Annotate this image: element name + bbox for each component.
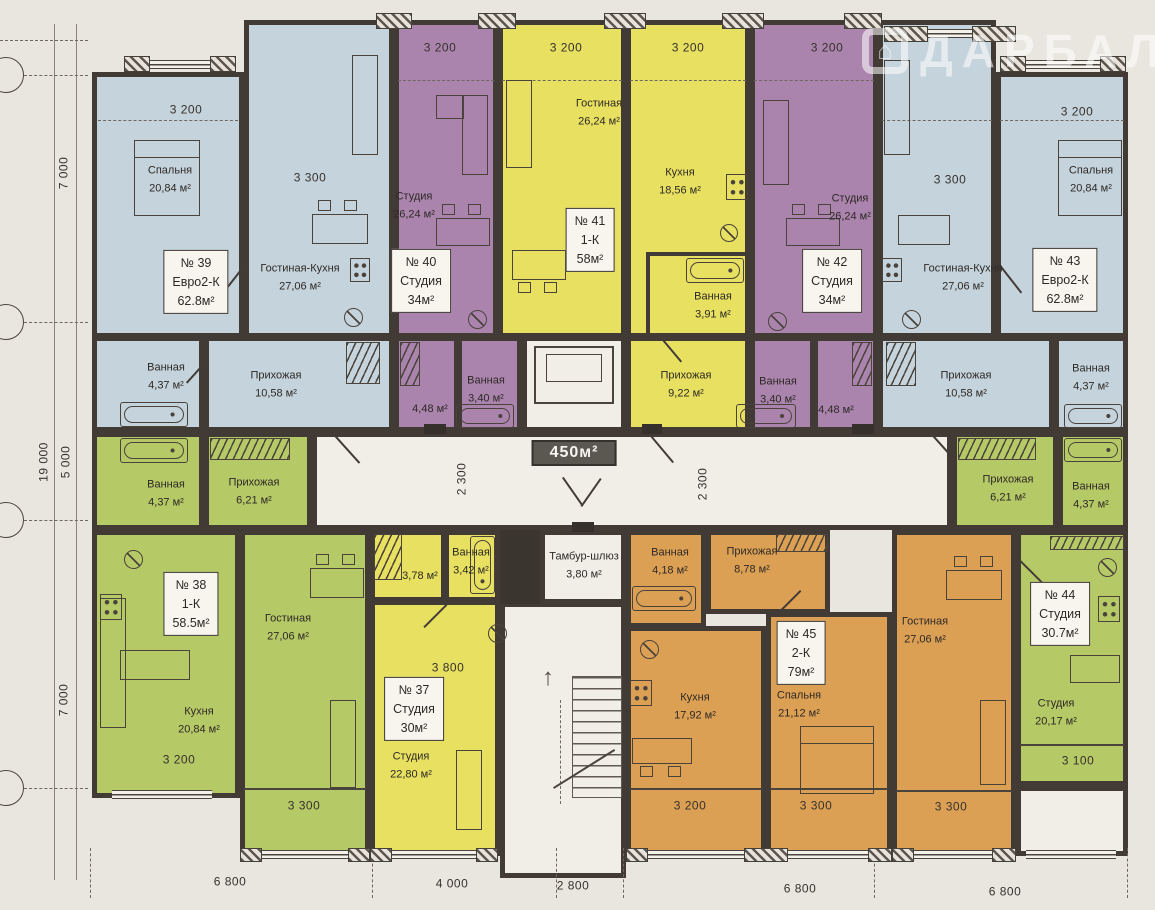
dim-apt45-living: 3 300 [935, 797, 968, 816]
label-apt41-kitchen: Кухня 18,56 м² [659, 164, 701, 199]
dim-bottom-2: 4 000 [436, 874, 469, 893]
chair-icon [668, 766, 681, 777]
chair-icon [468, 204, 481, 215]
washer-icon [124, 550, 143, 569]
room-area: 22,80 м² [390, 766, 432, 784]
dim-apt39-living: 3 300 [294, 168, 327, 187]
table-icon [1070, 655, 1120, 683]
bathtub-inner [124, 406, 184, 423]
wall-hatch [844, 13, 882, 29]
bathtub-icon [1064, 404, 1122, 428]
stairs-icon [572, 676, 622, 798]
room-name: Гостиная-Кухня [923, 260, 1002, 278]
washer-icon [488, 624, 507, 643]
balcony-rail [392, 850, 478, 859]
room-name: Кухня [178, 703, 220, 721]
room-name: Ванная [1072, 360, 1110, 378]
badge-apt42: № 42 Студия 34м² [802, 249, 862, 313]
stairs-up-arrow-icon: ↑ [542, 664, 554, 692]
apt-area: 58м² [575, 249, 606, 268]
apt-type: 2-К [786, 644, 817, 663]
closet-icon [1050, 536, 1124, 550]
sofa-icon [462, 95, 488, 175]
bathtub-inner [690, 262, 740, 279]
door-threshold [852, 424, 874, 434]
sofa-icon [506, 80, 532, 168]
chair-icon [544, 282, 557, 293]
axis-dash [0, 40, 88, 41]
balcony-line [630, 788, 762, 790]
closet-icon [852, 342, 872, 386]
axis-marker [0, 304, 24, 340]
dim-apt38-living: 3 300 [288, 796, 321, 815]
sofa-icon [884, 60, 910, 155]
room-name: Гостиная [902, 613, 948, 631]
room-area: 4,18 м² [651, 562, 689, 580]
apt-type: Студия [811, 272, 853, 291]
balcony-rail [1026, 850, 1116, 859]
axis-dash [90, 848, 91, 898]
table-icon [512, 250, 566, 280]
bed-pillow [1059, 141, 1121, 158]
badge-apt39: № 39 Евро2-К 62.8м² [163, 250, 228, 314]
wall-hatch [476, 848, 498, 862]
room-name: Спальня [1069, 162, 1113, 180]
room-name: Студия [390, 748, 432, 766]
axis-marker [0, 57, 24, 93]
bathtub-icon [120, 438, 188, 463]
sofa-icon [330, 700, 356, 788]
elevator-cab [546, 354, 602, 382]
stove-icon [1098, 596, 1120, 622]
table-icon [898, 215, 950, 245]
washer-icon [344, 308, 363, 327]
room-area: 8,78 м² [727, 561, 778, 579]
bathtub-inner [740, 408, 792, 424]
watermark-text: ДАРБАЛТ [920, 24, 1155, 78]
label-apt37-bath: Ванная 3,42 м² [452, 544, 490, 579]
dim-apt39-bedroom: 3 200 [170, 100, 203, 119]
wall-hatch [626, 848, 648, 862]
dim-bottom-5: 6 800 [989, 882, 1022, 901]
room-name: Кухня [674, 689, 716, 707]
balcony-rail [648, 850, 744, 859]
axis-dash [623, 848, 624, 898]
label-apt41-hall: Прихожая 9,22 м² [661, 367, 712, 402]
axis-dash [24, 520, 88, 521]
sofa-icon [980, 700, 1006, 785]
dim-left-total: 19 000 [34, 442, 53, 482]
room-name: Ванная [759, 373, 797, 391]
label-apt42-studio: Студия 26,24 м² [829, 190, 871, 225]
apt-area: 58.5м² [172, 613, 209, 632]
room-area: 10,58 м² [251, 385, 302, 403]
closet-icon [776, 534, 828, 552]
apt-number: № 45 [786, 625, 817, 644]
balcony-line [398, 80, 494, 81]
chair-icon [318, 200, 331, 211]
badge-apt38: № 38 1-К 58.5м² [163, 572, 218, 636]
room-name: Тамбур-шлюз [549, 548, 619, 566]
wall-hatch [868, 848, 892, 862]
badge-floor-area: 450м² [532, 440, 617, 466]
sofa-icon [436, 95, 464, 119]
closet-icon [346, 342, 380, 384]
room-name: Гостиная [576, 95, 622, 113]
apt-area: 62.8м² [1041, 289, 1088, 308]
closet-icon [210, 438, 290, 460]
room-area: 3,40 м² [759, 391, 797, 409]
room-area: 18,56 м² [659, 182, 701, 200]
room-area: 26,24 м² [393, 206, 435, 224]
dim-apt43-bedroom: 3 200 [1061, 102, 1094, 121]
room-area: 6,21 м² [983, 489, 1034, 507]
room-name: Прихожая [661, 367, 712, 385]
label-apt42-bath: Ванная 3,40 м² [759, 373, 797, 408]
stove-icon [350, 258, 370, 282]
wall-hatch [370, 848, 392, 862]
room-area: 4,37 м² [1072, 496, 1110, 514]
room-name: Спальня [148, 162, 192, 180]
table-icon [310, 568, 364, 598]
label-apt38-bath: Ванная 4,37 м² [147, 476, 185, 511]
room-name: Прихожая [727, 543, 778, 561]
label-apt37-studio: Студия 22,80 м² [390, 748, 432, 783]
wall-hatch [604, 13, 646, 29]
window-rail [112, 790, 212, 799]
label-apt39-bedroom: Спальня 20,84 м² [148, 162, 192, 197]
room-area: 21,12 м² [777, 705, 821, 723]
room-area: 3,42 м² [452, 562, 490, 580]
room-area: 6,21 м² [229, 492, 280, 510]
dim-apt45-kitchen: 3 200 [674, 796, 707, 815]
room-area: 3,80 м² [549, 566, 619, 584]
wall-hatch [892, 848, 914, 862]
room-name: Ванная [147, 476, 185, 494]
washer-icon [720, 224, 738, 242]
bed-pillow [801, 727, 873, 744]
chair-icon [792, 204, 805, 215]
badge-apt37: № 37 Студия 30м² [384, 677, 444, 741]
dim-apt41-right: 3 200 [672, 38, 705, 57]
badge-apt40: № 40 Студия 34м² [391, 249, 451, 313]
room-name: Ванная [1072, 478, 1110, 496]
bed-pillow [135, 141, 199, 158]
wall-hatch [992, 848, 1016, 862]
apt-type: Евро2-К [1041, 271, 1088, 290]
balcony-line [630, 80, 746, 81]
room-name: Гостиная-Кухня [260, 260, 339, 278]
apt-number: № 39 [172, 254, 219, 273]
axis-dash [24, 322, 88, 323]
wall-hatch [210, 56, 236, 72]
stove-icon [726, 174, 748, 200]
wall-hatch [348, 848, 370, 862]
balcony-rail [262, 850, 350, 859]
room-name: Студия [1035, 695, 1077, 713]
apt-area: 34м² [400, 290, 442, 309]
dim-apt41-left: 3 200 [550, 38, 583, 57]
room-name: Ванная [467, 372, 505, 390]
label-apt39-hall: Прихожая 10,58 м² [251, 367, 302, 402]
apt-number: № 41 [575, 212, 606, 231]
label-apt43-living: Гостиная-Кухня 27,06 м² [923, 260, 1002, 295]
door-threshold [642, 424, 662, 434]
balcony-rail [788, 850, 870, 859]
dim-bottom-4: 6 800 [784, 879, 817, 898]
bathtub-icon [456, 404, 514, 428]
label-apt39-living: Гостиная-Кухня 27,06 м² [260, 260, 339, 295]
badge-apt44: № 44 Студия 30.7м² [1030, 582, 1090, 646]
apt-area: 79м² [786, 662, 817, 681]
dim-left-mid: 5 000 [56, 446, 75, 479]
label-apt45-bedroom: Спальня 21,12 м² [777, 687, 821, 722]
washer-icon [768, 312, 787, 331]
dim-bottom-1: 6 800 [214, 872, 247, 891]
label-apt45-hall: Прихожая 8,78 м² [727, 543, 778, 578]
badge-apt45: № 45 2-К 79м² [777, 621, 826, 685]
apt-number: № 37 [393, 681, 435, 700]
balcony-rail [150, 60, 210, 69]
apt-number: № 42 [811, 253, 853, 272]
dim-apt42: 3 200 [811, 38, 844, 57]
label-apt40-studio: Студия 26,24 м² [393, 188, 435, 223]
washer-icon [902, 310, 921, 329]
bathtub-inner [460, 408, 510, 424]
apt-area: 62.8м² [172, 291, 219, 310]
room-area: 27,06 м² [265, 628, 311, 646]
room-area: 27,06 м² [260, 278, 339, 296]
room-area: 9,22 м² [661, 385, 712, 403]
room-area: 26,24 м² [576, 113, 622, 131]
apt-area: 34м² [811, 290, 853, 309]
room-name: Прихожая [229, 474, 280, 492]
balcony-line [98, 120, 238, 121]
room-area: 10,58 м² [941, 385, 992, 403]
badge-apt41: № 41 1-К 58м² [566, 208, 615, 272]
stove-icon [100, 594, 122, 620]
label-apt44-hall: Прихожая 6,21 м² [983, 471, 1034, 506]
label-apt41-bath: Ванная 3,91 м² [694, 288, 732, 323]
chair-icon [980, 556, 993, 567]
chair-icon [954, 556, 967, 567]
apt-number: № 43 [1041, 252, 1088, 271]
room-apt44-terrace [1016, 786, 1128, 856]
stairs-dash [560, 700, 561, 804]
dimension-line [54, 24, 55, 880]
room-area: 4,37 м² [147, 377, 185, 395]
apt-type: Студия [393, 700, 435, 719]
room-area: 20,17 м² [1035, 713, 1077, 731]
dim-apt45-bedroom: 3 300 [800, 796, 833, 815]
axis-dash [1127, 848, 1128, 898]
bathtub-inner [1068, 408, 1118, 424]
table-icon [436, 218, 490, 246]
chair-icon [640, 766, 653, 777]
apt-type: 1-К [575, 231, 606, 250]
label-tambur: Тамбур-шлюз 3,80 м² [549, 548, 619, 583]
bathtub-icon [120, 402, 188, 427]
label-apt43-bath: Ванная 4,37 м² [1072, 360, 1110, 395]
apt-number: № 40 [400, 253, 442, 272]
label-apt37-hall: 3,78 м² [402, 568, 438, 586]
chair-icon [342, 554, 355, 565]
label-apt43-hall: Прихожая 10,58 м² [941, 367, 992, 402]
elevator-icon [534, 346, 614, 404]
balcony-line [244, 788, 366, 790]
room-area: 27,06 м² [902, 631, 948, 649]
door-threshold [424, 424, 446, 434]
watermark-logo-icon: ⌂ [862, 28, 908, 74]
balcony-rail [914, 850, 994, 859]
room-area: 20,84 м² [178, 721, 220, 739]
label-apt45-kitchen: Кухня 17,92 м² [674, 689, 716, 724]
apt-type: Студия [400, 272, 442, 291]
room-area: 20,84 м² [1069, 180, 1113, 198]
closet-icon [374, 534, 402, 580]
bathtub-inner [636, 590, 692, 607]
room-area: 3,40 м² [467, 390, 505, 408]
dim-left-top: 7 000 [54, 157, 73, 190]
dim-bottom-3: 2 800 [557, 876, 590, 895]
badge-apt43: № 43 Евро2-К 62.8м² [1032, 248, 1097, 312]
label-apt38-hall: Прихожая 6,21 м² [229, 474, 280, 509]
room-name: Ванная [651, 544, 689, 562]
room-area: 4,37 м² [1072, 378, 1110, 396]
room-name: Ванная [147, 359, 185, 377]
label-apt44-bath: Ванная 4,37 м² [1072, 478, 1110, 513]
balcony-line [754, 80, 874, 81]
balcony-line [896, 790, 1012, 792]
table-icon [312, 214, 368, 244]
apt-type: 1-К [172, 595, 209, 614]
sofa-icon [352, 55, 378, 155]
wall-hatch [744, 848, 788, 862]
washer-icon [468, 310, 487, 329]
apt-area: 30м² [393, 718, 435, 737]
axis-dash [24, 788, 88, 789]
room-name: Прихожая [941, 367, 992, 385]
room-area: 3,91 м² [694, 306, 732, 324]
label-apt38-kitchen: Кухня 20,84 м² [178, 703, 220, 738]
dim-corridor-left: 2 300 [452, 463, 471, 496]
room-name: Спальня [777, 687, 821, 705]
label-apt40-bath: Ванная 3,40 м² [467, 372, 505, 407]
apt-area: 30.7м² [1039, 623, 1081, 642]
room-name: Студия [829, 190, 871, 208]
bathtub-inner [124, 442, 184, 459]
apt-type: Студия [1039, 605, 1081, 624]
room-name: Прихожая [983, 471, 1034, 489]
dimension-line [76, 24, 77, 880]
wall-hatch [478, 13, 516, 29]
stove-icon [882, 258, 902, 282]
label-apt44-studio: Студия 20,17 м² [1035, 695, 1077, 730]
wall-hatch [124, 56, 150, 72]
axis-marker [0, 770, 24, 806]
wall-hatch [722, 13, 764, 29]
axis-marker [0, 502, 24, 538]
label-apt41-living: Гостиная 26,24 м² [576, 95, 622, 130]
label-apt45-living: Гостиная 27,06 м² [902, 613, 948, 648]
wall-hatch [240, 848, 262, 862]
room-area: 4,37 м² [147, 494, 185, 512]
bathtub-inner [1068, 442, 1118, 458]
label-apt40-hall: 4,48 м² [412, 401, 448, 419]
closet-icon [958, 438, 1036, 460]
room-area: 20,84 м² [148, 180, 192, 198]
washer-icon [1098, 558, 1117, 577]
room-name: Ванная [694, 288, 732, 306]
kitchen-island-icon [120, 650, 190, 680]
dim-left-bottom: 7 000 [54, 684, 73, 717]
label-apt38-living: Гостиная 27,06 м² [265, 610, 311, 645]
room-name: Гостиная [265, 610, 311, 628]
apt-number: № 38 [172, 576, 209, 595]
label-apt45-bath: Ванная 4,18 м² [651, 544, 689, 579]
apt-number: № 44 [1039, 586, 1081, 605]
chair-icon [316, 554, 329, 565]
room-corridor [312, 432, 952, 530]
label-apt42-hall: 4,48 м² [818, 402, 854, 420]
wall-hatch [376, 13, 412, 29]
label-apt39-bath: Ванная 4,37 м² [147, 359, 185, 394]
wall-segment [500, 530, 540, 604]
chair-icon [344, 200, 357, 211]
bathtub-icon [686, 258, 744, 283]
axis-dash [24, 75, 88, 76]
room-name: Прихожая [251, 367, 302, 385]
floor-plan: ↑ [0, 0, 1155, 910]
label-apt43-bedroom: Спальня 20,84 м² [1069, 162, 1113, 197]
dim-apt40: 3 200 [424, 38, 457, 57]
door-threshold [572, 522, 594, 532]
room-area: 26,24 м² [829, 208, 871, 226]
dim-apt38-kitchen: 3 200 [163, 750, 196, 769]
dim-apt44: 3 100 [1062, 751, 1095, 770]
dim-apt37: 3 800 [432, 658, 465, 677]
room-name: Ванная [452, 544, 490, 562]
room-name: Студия [393, 188, 435, 206]
sofa-icon [456, 750, 482, 830]
closet-icon [400, 342, 420, 386]
stove-icon [630, 680, 652, 706]
dim-corridor-right: 2 300 [693, 468, 712, 501]
chair-icon [518, 282, 531, 293]
room-name: Кухня [659, 164, 701, 182]
bathtub-icon [1064, 438, 1122, 462]
room-area: 17,92 м² [674, 707, 716, 725]
table-icon [632, 738, 692, 764]
wall-partition [810, 340, 818, 428]
closet-icon [886, 342, 916, 386]
table-icon [946, 570, 1002, 600]
bed-icon [800, 726, 874, 794]
room-area: 27,06 м² [923, 278, 1002, 296]
sofa-icon [763, 100, 789, 185]
bathtub-icon [632, 586, 696, 611]
balcony-line [1020, 744, 1124, 746]
dim-apt43-living: 3 300 [934, 170, 967, 189]
chair-icon [442, 204, 455, 215]
washer-icon [640, 640, 659, 659]
apt-type: Евро2-К [172, 273, 219, 292]
